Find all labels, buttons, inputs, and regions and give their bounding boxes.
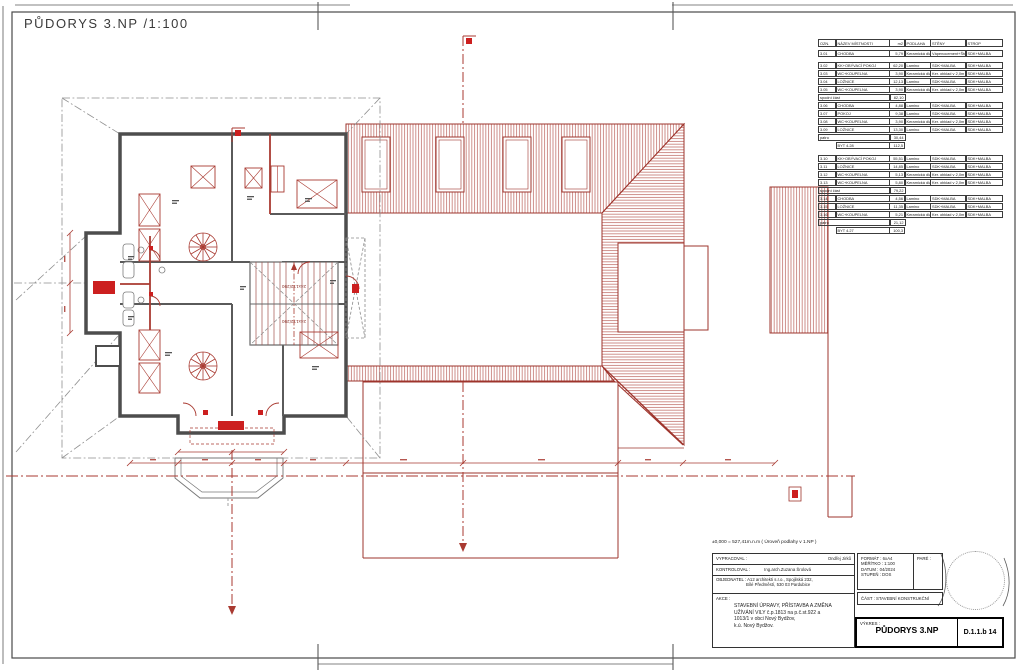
legend-row: 3.16WC+KOUPELNA5,21Keramická dlažbaKer. … <box>818 211 1006 218</box>
legend-row: 3.13WC+KOUPELNA5,80Keramická dlažbaKer. … <box>818 179 1006 186</box>
legend-cell: patro <box>818 134 890 141</box>
stamp-circle <box>946 551 1005 610</box>
spiral-stair-lower <box>189 352 217 380</box>
legend-cell: 4,88 <box>889 102 905 109</box>
format-label: FORMÁT : <box>861 556 881 561</box>
legend-row: BYT 4.28112,5 <box>818 142 1006 149</box>
legend-row: patro21,12 <box>818 219 1006 226</box>
legend-row: 3.10KK+OBÝVACÍ POKOJ55,51LaminoSDK+MALBA… <box>818 155 1006 162</box>
drawing-number: D.1.1.b 14 <box>958 619 1002 646</box>
client-label: OBJEDNATEL : <box>716 577 746 582</box>
stair-label-upper: 24x172/290 <box>282 284 306 289</box>
legend-row: 3.12WC+KOUPELNA5,13Keramická dlažbaKer. … <box>818 171 1006 178</box>
legend-header-cell: OZN. <box>818 39 836 47</box>
legend-cell: 5,80 <box>889 179 905 186</box>
legend-cell: 3.13 <box>818 179 836 186</box>
legend-cell: Lamino <box>905 62 931 69</box>
chimney-fill <box>93 281 115 294</box>
legend-cell: 3.16 <box>818 211 836 218</box>
legend-cell: 3.08 <box>818 118 836 125</box>
legend-cell: SDK+MALBA <box>930 163 966 170</box>
legend-row: patro30,44 <box>818 134 1006 141</box>
titleblock-copy-box: PARÉ : <box>913 553 943 590</box>
legend-cell: SDK+MALBA <box>930 78 966 85</box>
legend-cell: spodní část <box>818 94 890 101</box>
legend-cell: SDK+MALBA <box>930 102 966 109</box>
legend-cell: LOŽNICE <box>836 126 890 133</box>
legend-cell: 3.03 <box>818 70 836 77</box>
legend-cell: Lamino <box>905 163 931 170</box>
legend-cell: 3,90 <box>889 86 905 93</box>
legend-cell: CHODBA <box>836 195 890 202</box>
legend-header-cell: STROP <box>966 39 1003 47</box>
copy-label: PARÉ : <box>917 556 931 561</box>
legend-cell: 3.14 <box>818 195 836 202</box>
legend-cell: 3.02 <box>818 62 836 69</box>
legend-header-cell: NÁZEV MÍSTNOSTI <box>836 39 890 47</box>
legend-cell: WC+KOUPELNA <box>836 86 890 93</box>
legend-cell <box>818 227 836 234</box>
legend-row: spodní část82,10 <box>818 94 1006 101</box>
legend-cell: Lamino <box>905 155 931 162</box>
legend-cell: 3.06 <box>818 102 836 109</box>
stair-label-lower: 24x172/290 <box>282 319 306 324</box>
legend-cell: 3,90 <box>889 118 905 125</box>
plan-title: PŮDORYS 3.NP /1:100 <box>24 16 189 31</box>
legend-cell: 11,35 <box>889 203 905 210</box>
legend-cell: CHODBA <box>836 102 890 109</box>
legend-cell: SDK+MALBA <box>930 62 966 69</box>
legend-cell: SDK+MALBA <box>966 163 1003 170</box>
legend-cell: 5,79 <box>889 50 905 57</box>
legend-cell: BYT 4.27 <box>836 227 890 234</box>
legend-cell: 3.04 <box>818 78 836 85</box>
legend-cell: SDK+MALBA <box>966 171 1003 178</box>
drawing-sheet: 24x172/290 24x172/290 <box>0 0 1024 672</box>
checker-value: Ing.arch.Zuzana Šrolová <box>764 567 811 572</box>
elevation-note: ±0,000 = 527,41m.n.m ( Úroveň podlahy v … <box>712 540 817 545</box>
legend-cell: SDK+MALBA <box>930 126 966 133</box>
legend-row: 3.06CHODBA4,88LaminoSDK+MALBASDK+MALBA <box>818 102 1006 109</box>
legend-cell: SDK+MALBA <box>966 50 1003 57</box>
legend-cell: LOŽNICE <box>836 78 890 85</box>
lower-annex-outline <box>363 382 618 558</box>
titleblock-format-box: FORMÁT : 6xA4 MĚŘÍTKO : 1:100 DATUM : 04… <box>857 553 914 590</box>
legend-cell: KK+OBÝVACÍ POKOJ <box>836 155 890 162</box>
legend-cell: 100,3 <box>889 227 905 234</box>
drawing-title: PŮDORYS 3.NP <box>857 628 957 633</box>
legend-cell: LOŽNICE <box>836 163 890 170</box>
legend-cell: SDK+MALBA <box>930 110 966 117</box>
legend-cell: 3.05 <box>818 86 836 93</box>
project-line4: k.ú. Nový Bydžov. <box>734 623 851 630</box>
client-line2: Bílé Předměstí, 530 03 Pardubice <box>746 582 810 587</box>
legend-cell: 3.10 <box>818 155 836 162</box>
author-label: VYPRACOVAL : <box>716 556 747 561</box>
legend-cell: Keramická dlažba <box>905 50 931 57</box>
titleblock-project-row: AKCE : STAVEBNÍ ÚPRAVY, PŘÍSTAVBA A ZMĚN… <box>712 593 855 648</box>
legend-cell: SDK+MALBA <box>966 179 1003 186</box>
main-staircase: 24x172/290 24x172/290 <box>250 262 338 345</box>
legend-cell: WC+KOUPELNA <box>836 211 890 218</box>
part-value: STAVEBNÍ KONSTRUKČNÍ <box>876 596 929 601</box>
legend-cell: CHODBA <box>836 50 890 57</box>
legend-cell: KK+OBÝVACÍ POKOJ <box>836 62 890 69</box>
legend-cell: Vápenocement+Štuk <box>930 50 966 57</box>
legend-cell: Keramická dlažba <box>905 70 931 77</box>
legend-cell: SDK+MALBA <box>966 78 1003 85</box>
legend-cell: SDK+MALBA <box>966 126 1003 133</box>
legend-cell: SDK+MALBA <box>966 110 1003 117</box>
legend-cell: 4,56 <box>889 195 905 202</box>
legend-cell: Keramická dlažba <box>905 179 931 186</box>
legend-cell <box>818 142 836 149</box>
legend-cell: Ker. obklad v 2,0m <box>930 70 966 77</box>
legend-cell: 13,30 <box>889 126 905 133</box>
legend-cell: Lamino <box>905 195 931 202</box>
legend-cell: LOŽNICE <box>836 203 890 210</box>
legend-cell: SDK+MALBA <box>966 102 1003 109</box>
legend-cell: Lamino <box>905 78 931 85</box>
legend-cell: 3.07 <box>818 110 836 117</box>
legend-cell: WC+KOUPELNA <box>836 70 890 77</box>
legend-cell: 3.01 <box>818 50 836 57</box>
legend-header-cell: m2 <box>889 39 905 47</box>
legend-cell: POKOJ <box>836 110 890 117</box>
legend-cell: Keramická dlažba <box>905 171 931 178</box>
legend-cell: WC+KOUPELNA <box>836 171 890 178</box>
section-mark-vertical-2 <box>459 36 476 552</box>
legend-cell: SDK+MALBA <box>966 86 1003 93</box>
legend-cell: Keramická dlažba <box>905 86 931 93</box>
stage-label: STUPEŇ : <box>861 572 881 577</box>
legend-cell: Lamino <box>905 203 931 210</box>
roof-plan <box>346 124 852 558</box>
legend-cell: SDK+MALBA <box>966 118 1003 125</box>
legend-table: OZN.NÁZEV MÍSTNOSTIm2PODLAHASTĚNYSTROP3.… <box>818 38 1006 234</box>
legend-cell: SDK+MALBA <box>966 62 1003 69</box>
date-label: DATUM : <box>861 567 878 572</box>
scale-label: MĚŘÍTKO : <box>861 561 883 566</box>
legend-row: 3.08WC+KOUPELNA3,90Keramická dlažbaKer. … <box>818 118 1006 125</box>
format-value: 6xA4 <box>883 556 893 561</box>
legend-row: 3.02KK+OBÝVACÍ POKOJ62,20LaminoSDK+MALBA… <box>818 62 1006 69</box>
legend-cell: SDK+MALBA <box>966 203 1003 210</box>
legend-cell: Ker. obklad v 2,0m <box>930 86 966 93</box>
legend-row: 3.15LOŽNICE11,35LaminoSDK+MALBASDK+MALBA <box>818 203 1006 210</box>
legend-cell: Keramická dlažba <box>905 211 931 218</box>
legend-cell: 79,22 <box>890 187 906 194</box>
legend-cell: 112,5 <box>889 142 905 149</box>
spiral-stair-upper <box>189 233 217 261</box>
legend-cell: SDK+MALBA <box>966 195 1003 202</box>
part-label: ČÁST : <box>861 596 875 601</box>
legend-cell: 14,85 <box>889 163 905 170</box>
date-value: 04/2024 <box>880 567 896 572</box>
legend-cell: WC+KOUPELNA <box>836 179 890 186</box>
titleblock-part-box: ČÁST : STAVEBNÍ KONSTRUKČNÍ <box>857 592 943 605</box>
legend-cell: spodní část <box>818 187 890 194</box>
legend-cell: Lamino <box>905 126 931 133</box>
legend-cell: SDK+MALBA <box>966 70 1003 77</box>
roof-side-door <box>789 487 801 501</box>
project-label: AKCE : <box>716 596 730 601</box>
legend-cell: 12,13 <box>889 78 905 85</box>
roof-dormer <box>618 243 708 332</box>
legend-cell: BYT 4.28 <box>836 142 890 149</box>
legend-cell: 21,12 <box>890 219 906 226</box>
legend-row: 3.09LOŽNICE13,30LaminoSDK+MALBASDK+MALBA <box>818 126 1006 133</box>
new-opening-fill <box>218 421 244 430</box>
legend-header-cell: STĚNY <box>930 39 966 47</box>
legend-cell: 3,90 <box>889 70 905 77</box>
author-value: Ondřej Jirků <box>828 556 851 561</box>
legend-row: 3.07POKOJ9,38LaminoSDK+MALBASDK+MALBA <box>818 110 1006 117</box>
legend-row: 3.05WC+KOUPELNA3,90Keramická dlažbaKer. … <box>818 86 1006 93</box>
legend-cell: Ker. obklad v 2,0m <box>930 211 966 218</box>
legend-cell: SDK+MALBA <box>966 155 1003 162</box>
legend-cell: 5,21 <box>889 211 905 218</box>
legend-header-cell: PODLAHA <box>905 39 931 47</box>
legend-cell: patro <box>818 219 890 226</box>
legend-cell: Keramická dlažba <box>905 118 931 125</box>
legend-cell: 62,20 <box>889 62 905 69</box>
legend-cell: Lamino <box>905 110 931 117</box>
legend-cell: SDK+MALBA <box>930 155 966 162</box>
legend-cell: Ker. obklad v 2,0m <box>930 171 966 178</box>
legend-row: 3.01CHODBA5,79Keramická dlažbaVápenoceme… <box>818 50 1006 57</box>
legend-cell: 3.11 <box>818 163 836 170</box>
legend-cell: SDK+MALBA <box>930 195 966 202</box>
legend-row: 3.04LOŽNICE12,13LaminoSDK+MALBASDK+MALBA <box>818 78 1006 85</box>
legend-header-row: OZN.NÁZEV MÍSTNOSTIm2PODLAHASTĚNYSTROP <box>818 39 1006 47</box>
legend-cell: WC+KOUPELNA <box>836 118 890 125</box>
legend-cell: 3.15 <box>818 203 836 210</box>
legend-cell: SDK+MALBA <box>966 211 1003 218</box>
legend-row: 3.11LOŽNICE14,85LaminoSDK+MALBASDK+MALBA <box>818 163 1006 170</box>
legend-cell: Ker. obklad v 2,0m <box>930 179 966 186</box>
legend-cell: 3.12 <box>818 171 836 178</box>
titleblock-drawing-box: VÝKRES : PŮDORYS 3.NP D.1.1.b 14 <box>855 617 1004 648</box>
titleblock-client-row: OBJEDNATEL : A12 architekti s.r.o., Spoj… <box>712 575 855 594</box>
legend-cell: 30,44 <box>890 134 906 141</box>
legend-cell: Ker. obklad v 2,0m <box>930 118 966 125</box>
legend-cell: 82,10 <box>890 94 906 101</box>
legend-cell: 9,38 <box>889 110 905 117</box>
legend-cell: 5,13 <box>889 171 905 178</box>
legend-row: spodní část79,22 <box>818 187 1006 194</box>
client-line1: A12 architekti s.r.o., Spojilská 232, <box>747 577 813 582</box>
legend-cell: Lamino <box>905 102 931 109</box>
legend-cell: SDK+MALBA <box>930 203 966 210</box>
checker-label: KONTROLOVAL : <box>716 567 750 572</box>
legend-row: BYT 4.27100,3 <box>818 227 1006 234</box>
legend-cell: 3.09 <box>818 126 836 133</box>
legend-row: 3.03WC+KOUPELNA3,90Keramická dlažbaKer. … <box>818 70 1006 77</box>
scale-value: 1:100 <box>884 561 895 566</box>
legend-row: 3.14CHODBA4,56LaminoSDK+MALBASDK+MALBA <box>818 195 1006 202</box>
stage-value: DOS <box>882 572 891 577</box>
legend-cell: 55,51 <box>889 155 905 162</box>
